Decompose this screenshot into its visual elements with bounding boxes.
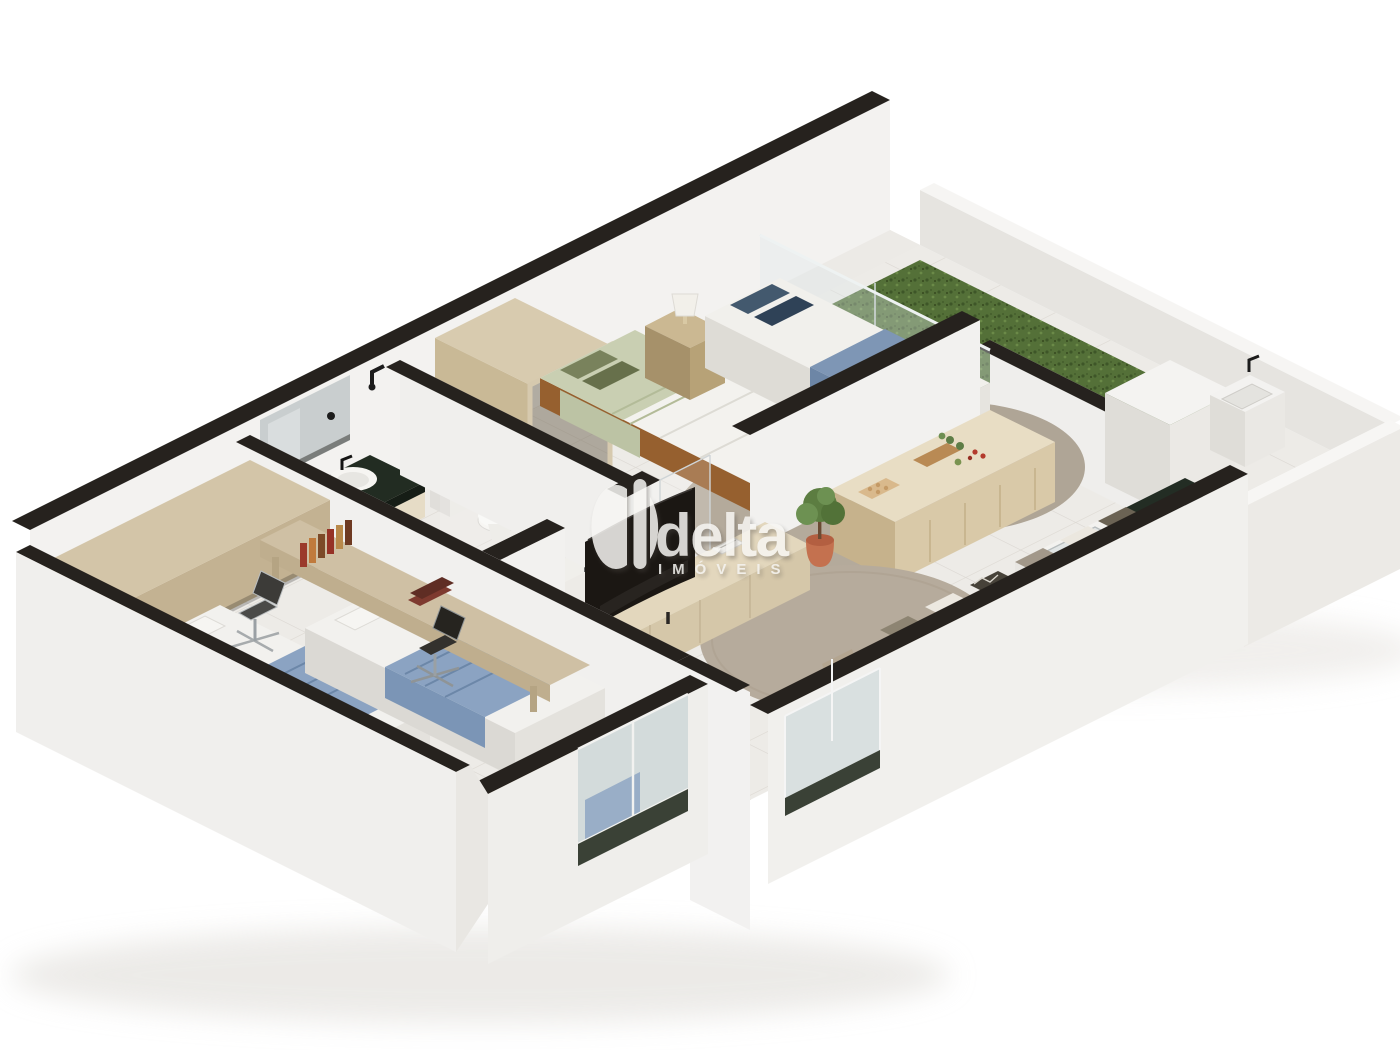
floor-plan-render: delta IMÓVEIS <box>0 0 1400 1050</box>
brand-name: delta <box>655 502 790 569</box>
towel-hook-icon <box>327 412 335 420</box>
brand-tagline: IMÓVEIS <box>658 560 791 578</box>
isometric-scene: delta IMÓVEIS <box>0 0 1400 1050</box>
